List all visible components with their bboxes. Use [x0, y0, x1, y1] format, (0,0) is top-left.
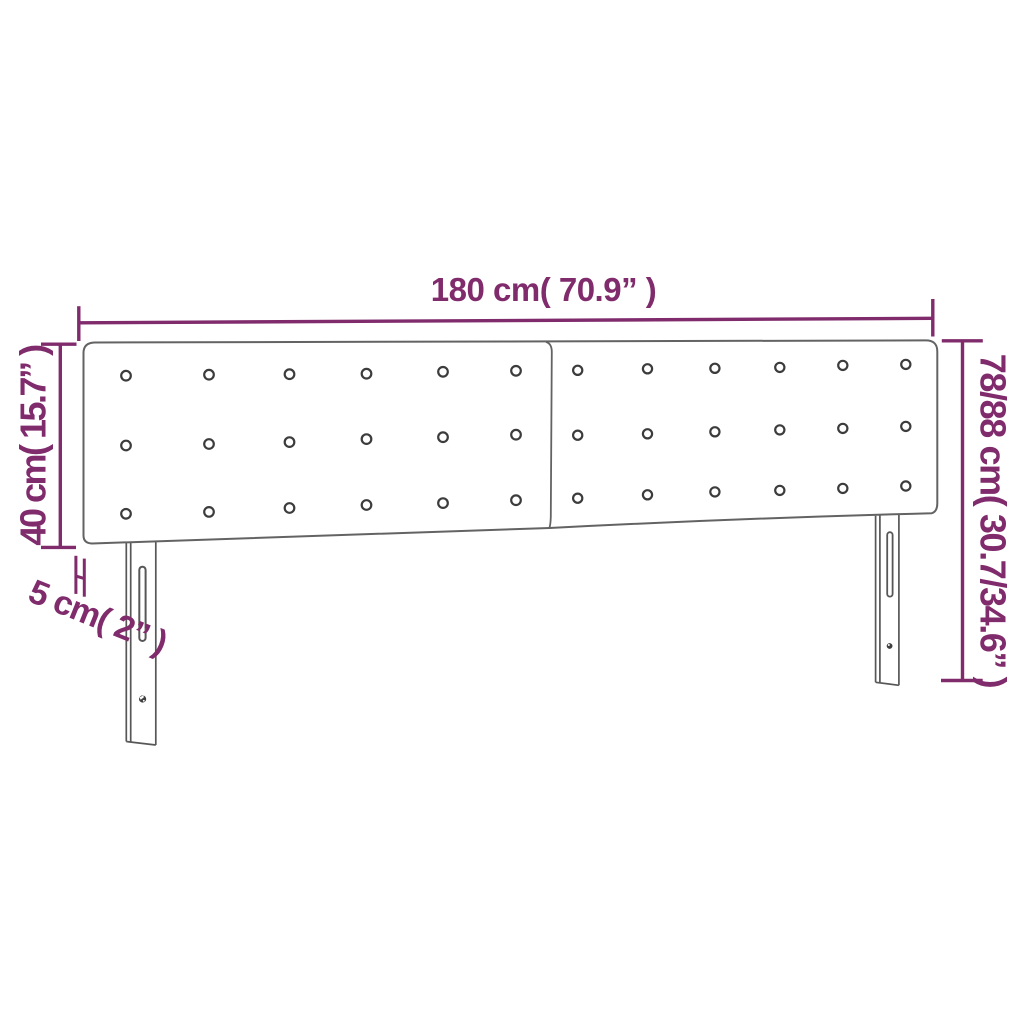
svg-text:78/88 cm( 30.7/34.6” ): 78/88 cm( 30.7/34.6” )	[973, 354, 1014, 688]
svg-text:40 cm( 15.7” ): 40 cm( 15.7” )	[13, 345, 54, 546]
svg-text:180 cm( 70.9” ): 180 cm( 70.9” )	[431, 271, 656, 308]
